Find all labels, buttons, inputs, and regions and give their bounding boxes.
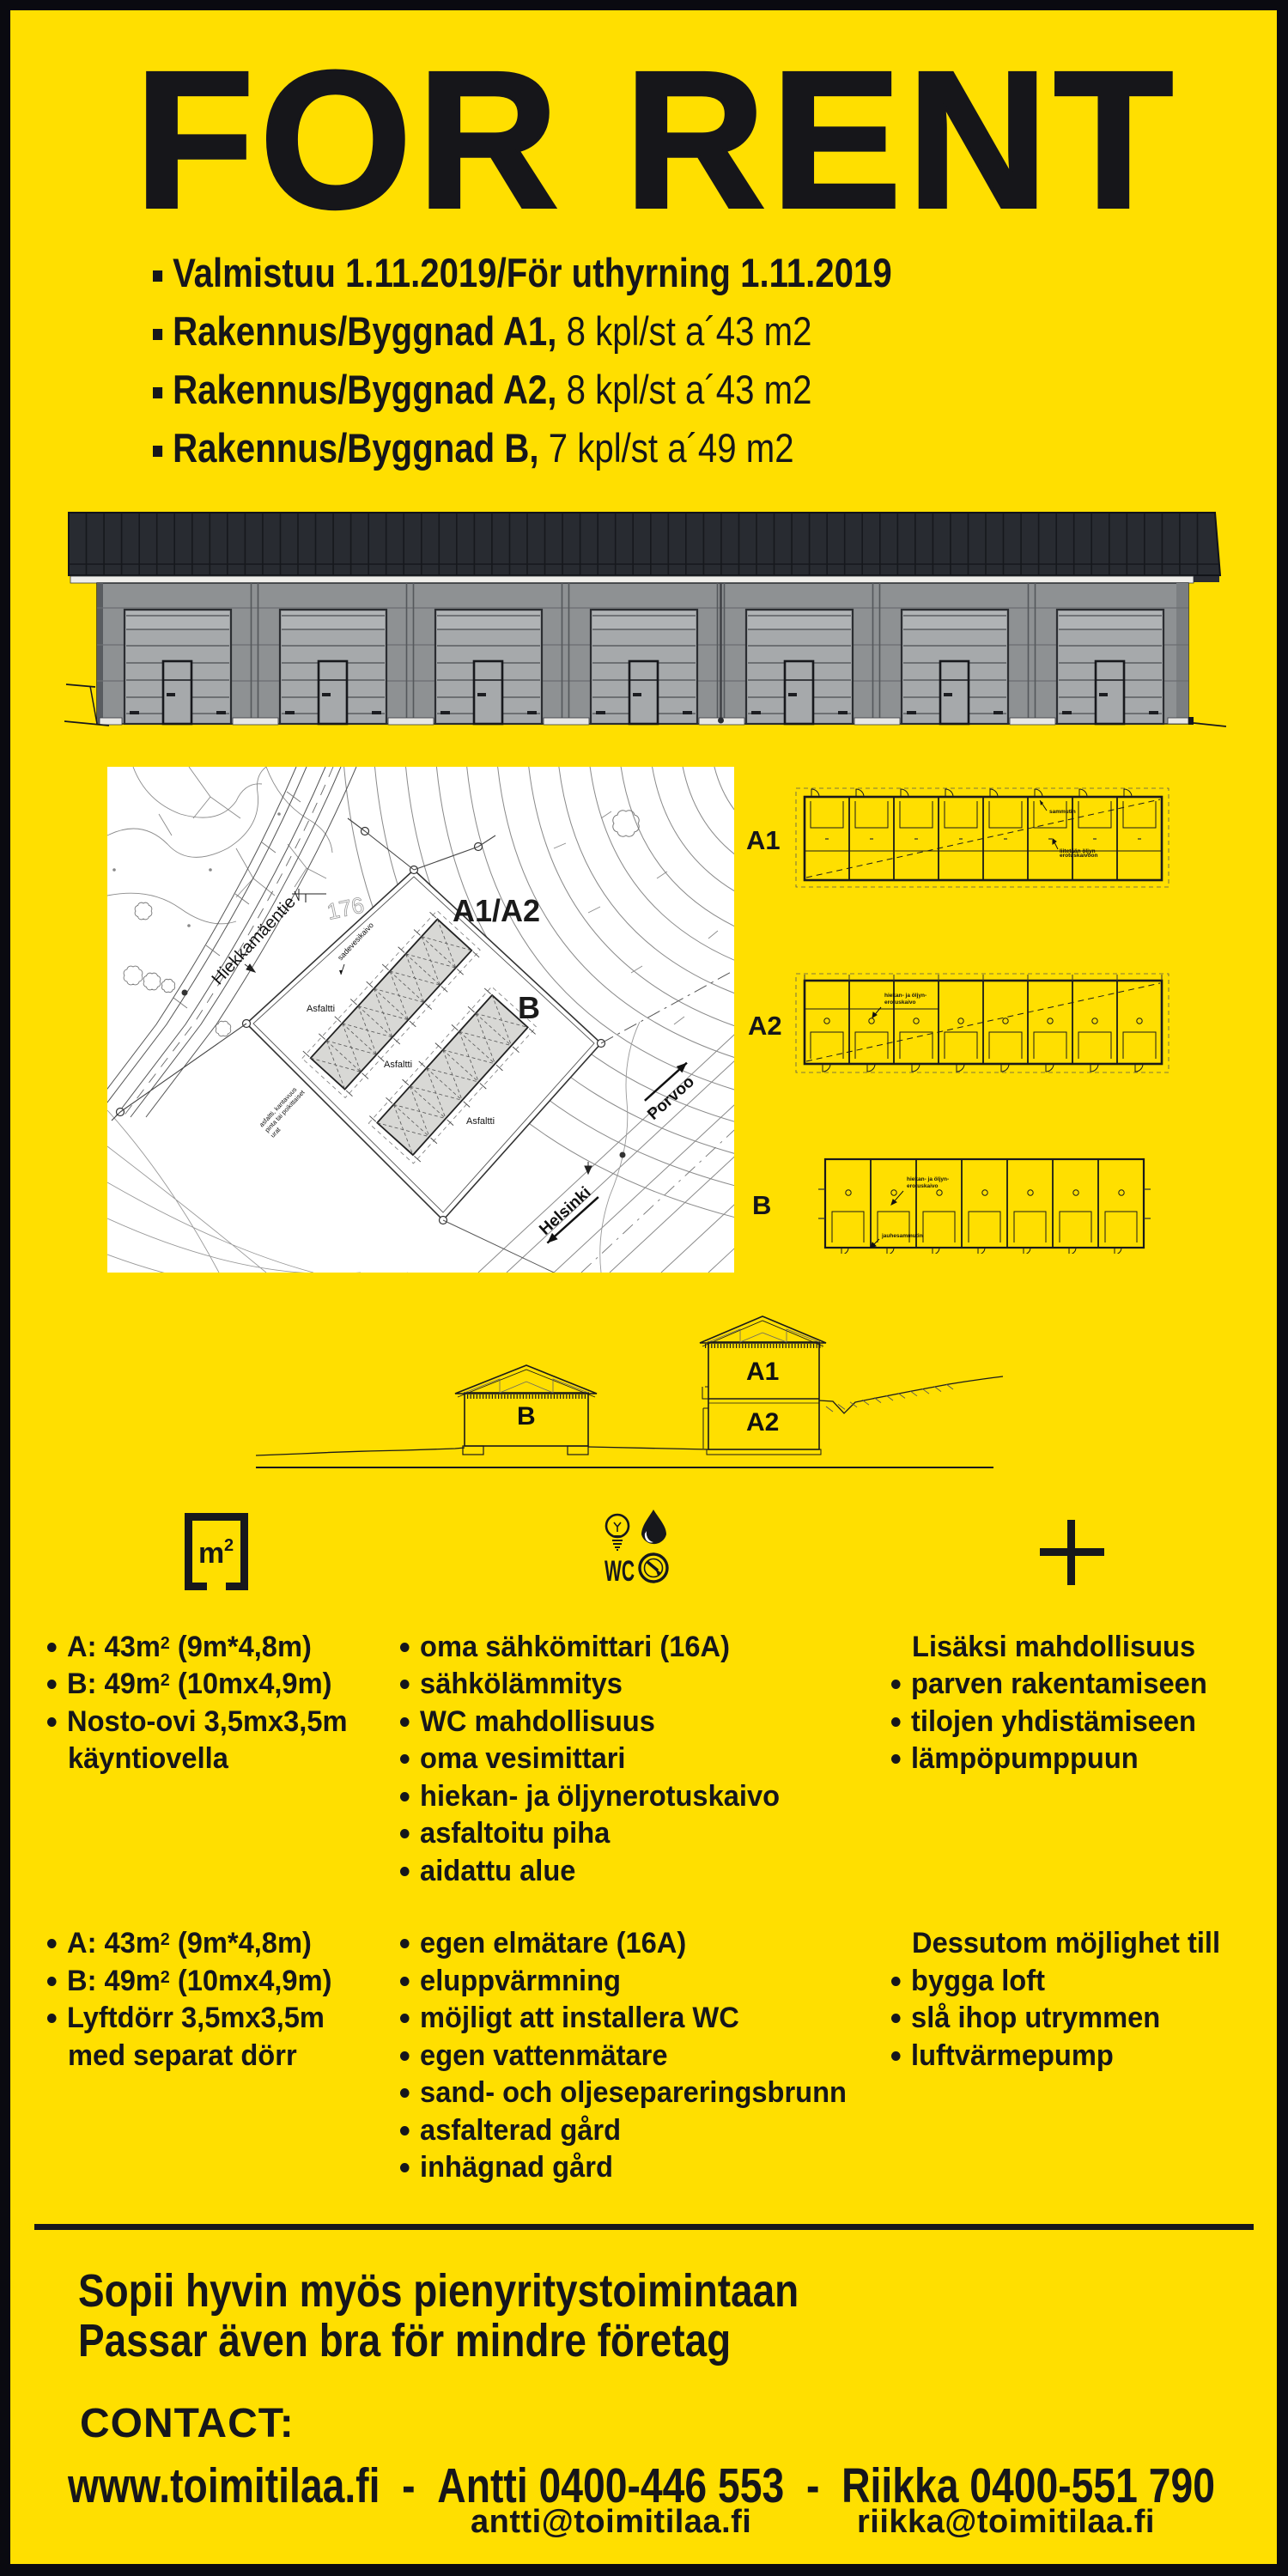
svg-text:Asfaltti: Asfaltti [466,1116,495,1127]
svg-text:A1/A2: A1/A2 [453,893,540,928]
svg-text:erotuskaivoon: erotuskaivoon [1060,853,1097,859]
svg-text:A1: A1 [746,1358,779,1386]
svg-text:2: 2 [224,1536,234,1555]
svg-text:hiekan- ja öljyn-: hiekan- ja öljyn- [884,993,927,999]
svg-text:jauhesammutin: jauhesammutin [881,1233,923,1239]
svg-text:sammutin: sammutin [1049,809,1076,815]
svg-text:Asfaltti: Asfaltti [307,1004,335,1014]
svg-text:erotuskaivo: erotuskaivo [884,999,916,1005]
svg-text:B: B [517,1402,536,1431]
svg-text:WC: WC [605,1554,635,1587]
svg-text:B: B [518,990,540,1025]
svg-text:hiekan- ja öljyn-: hiekan- ja öljyn- [907,1176,949,1182]
svg-text:m: m [198,1537,224,1570]
svg-text:Asfaltti: Asfaltti [384,1060,412,1070]
svg-text:erotuskaivo: erotuskaivo [907,1183,939,1189]
svg-text:A2: A2 [746,1408,779,1437]
